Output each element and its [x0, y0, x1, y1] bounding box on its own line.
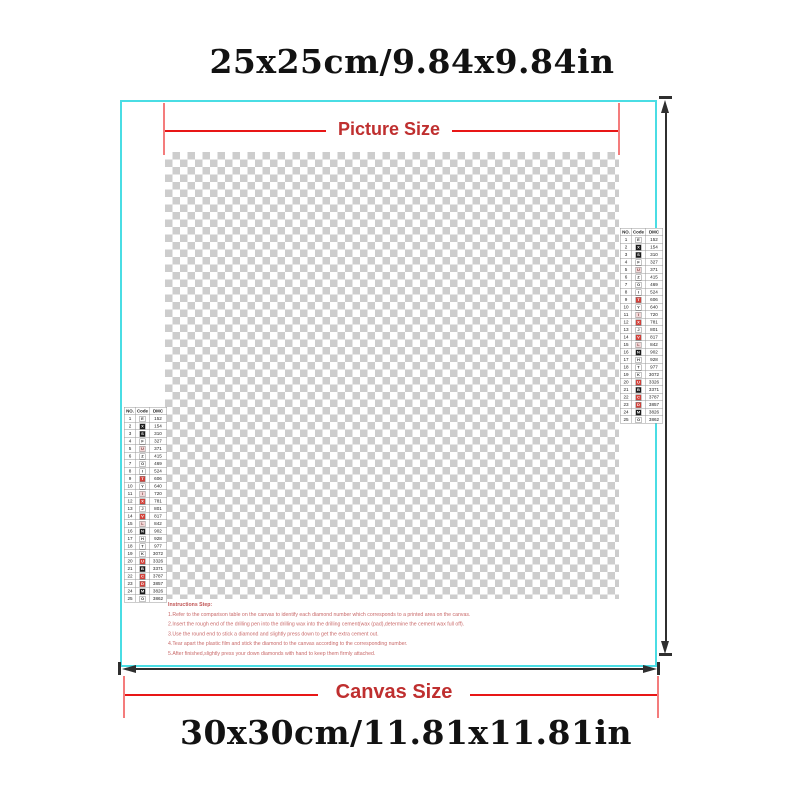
instructions-title: Instructions Step:: [168, 600, 620, 610]
color-symbol-icon: T: [140, 543, 146, 549]
legend-code-cell: B: [136, 565, 150, 573]
legend-code-cell: D: [136, 580, 150, 588]
legend-no-cell: 21: [124, 565, 136, 573]
color-symbol-icon: T: [636, 364, 642, 370]
width-arrow-right-cap: [657, 662, 660, 675]
legend-code-cell: I: [632, 311, 646, 319]
color-symbol-icon: B: [140, 566, 146, 572]
instructions-block: Instructions Step: 1.Refer to the compar…: [168, 600, 620, 659]
legend-row: 12X781: [124, 497, 167, 505]
color-symbol-icon: V: [140, 513, 146, 519]
legend-code-cell: T: [632, 363, 646, 371]
legend-code-cell: M: [136, 587, 150, 595]
legend-no-cell: 24: [620, 408, 632, 416]
legend-dmc-cell: 3072: [149, 550, 167, 558]
legend-row: 8I524: [124, 467, 167, 475]
color-symbol-icon: B: [636, 387, 642, 393]
legend-no-cell: 2: [620, 243, 632, 251]
instruction-step: 4.Tear apart the plastic film and stick …: [168, 639, 620, 649]
canvas-dimensions-text: 30x30cm/11.81x11.81in: [6, 713, 800, 752]
legend-no-cell: 8: [124, 467, 136, 475]
color-symbol-icon: N: [140, 528, 146, 534]
legend-code-cell: K: [632, 371, 646, 379]
legend-row: 23D3857: [620, 401, 663, 409]
legend-dmc-cell: 928: [149, 535, 167, 543]
instruction-step: 2.Insert the rough end of the drilling p…: [168, 620, 620, 630]
legend-code-cell: H: [136, 535, 150, 543]
color-symbol-icon: O: [636, 282, 642, 288]
legend-code-cell: O: [632, 416, 646, 424]
legend-row: 9T606: [620, 296, 663, 304]
legend-no-cell: 19: [620, 371, 632, 379]
product-diagram: 25x25cm/9.84x9.84in Picture Size NO.Code…: [0, 0, 800, 800]
legend-no-cell: 3: [620, 251, 632, 259]
legend-dmc-cell: 415: [645, 273, 663, 281]
legend-no-cell: 7: [620, 281, 632, 289]
legend-dmc-cell: 310: [645, 251, 663, 259]
picture-size-tick-right: [618, 103, 620, 155]
color-symbol-icon: I: [636, 312, 642, 318]
legend-no-cell: 6: [124, 452, 136, 460]
legend-no-cell: 10: [124, 482, 136, 490]
legend-code-cell: U: [632, 378, 646, 386]
legend-code-cell: E: [632, 236, 646, 244]
legend-row: 20U3326: [620, 378, 663, 386]
legend-row: 10Y640: [124, 482, 167, 490]
legend-code-cell: F: [632, 258, 646, 266]
legend-row: 12X781: [620, 318, 663, 326]
legend-no-cell: 10: [620, 303, 632, 311]
legend-dmc-cell: 152: [149, 415, 167, 423]
legend-dmc-cell: 817: [645, 333, 663, 341]
legend-header-cell: DMC: [149, 407, 167, 415]
legend-code-cell: T: [136, 475, 150, 483]
color-symbol-icon: U: [636, 379, 642, 385]
legend-no-cell: 17: [124, 535, 136, 543]
legend-dmc-cell: 606: [645, 296, 663, 304]
picture-size-tick-left: [163, 103, 165, 155]
legend-dmc-cell: 640: [149, 482, 167, 490]
legend-code-cell: I: [136, 490, 150, 498]
instruction-step: 5.After finished,slightly press your dow…: [168, 649, 620, 659]
color-symbol-icon: Y: [636, 304, 642, 310]
picture-size-line-left: [164, 130, 326, 132]
color-symbol-icon: F: [636, 259, 642, 265]
legend-dmc-cell: 928: [645, 356, 663, 364]
legend-no-cell: 5: [124, 445, 136, 453]
legend-code-cell: X: [632, 243, 646, 251]
legend-code-cell: E: [136, 415, 150, 423]
legend-row: 4F327: [124, 437, 167, 445]
legend-code-cell: M: [632, 408, 646, 416]
legend-no-cell: 14: [620, 333, 632, 341]
legend-row: 19K3072: [620, 371, 663, 379]
picture-area-checkerboard: [165, 152, 619, 599]
picture-dimensions-text: 25x25cm/9.84x9.84in: [12, 42, 800, 81]
legend-no-cell: 15: [124, 520, 136, 528]
color-symbol-icon: O: [140, 461, 146, 467]
legend-no-cell: 23: [124, 580, 136, 588]
color-symbol-icon: L: [140, 521, 146, 527]
legend-dmc-cell: 720: [645, 311, 663, 319]
legend-code-cell: I: [136, 467, 150, 475]
color-symbol-icon: I: [636, 289, 642, 295]
picture-size-line-right: [452, 130, 619, 132]
legend-code-cell: F: [136, 437, 150, 445]
legend-no-cell: 13: [124, 505, 136, 513]
color-symbol-icon: X: [140, 498, 146, 504]
legend-dmc-cell: 154: [149, 422, 167, 430]
legend-row: 16N902: [620, 348, 663, 356]
picture-size-label: Picture Size: [326, 119, 452, 140]
color-symbol-icon: F: [140, 438, 146, 444]
legend-code-cell: I: [632, 288, 646, 296]
legend-no-cell: 5: [620, 266, 632, 274]
legend-row: 22C3787: [124, 572, 167, 580]
legend-row: 7O469: [620, 281, 663, 289]
color-symbol-icon: V: [636, 334, 642, 340]
legend-row: 1E152: [620, 236, 663, 244]
legend-dmc-cell: 3826: [645, 408, 663, 416]
color-symbol-icon: H: [140, 536, 146, 542]
legend-dmc-cell: 524: [149, 467, 167, 475]
legend-code-cell: U: [632, 266, 646, 274]
legend-no-cell: 13: [620, 326, 632, 334]
legend-row: 21B3371: [620, 386, 663, 394]
legend-header-cell: DMC: [645, 228, 663, 236]
canvas-size-line-right: [470, 694, 658, 696]
legend-dmc-cell: 606: [149, 475, 167, 483]
legend-row: 14V817: [124, 512, 167, 520]
legend-code-cell: X: [136, 422, 150, 430]
legend-dmc-cell: 801: [149, 505, 167, 513]
legend-dmc-cell: 3787: [645, 393, 663, 401]
color-symbol-icon: S: [140, 431, 146, 437]
legend-code-cell: O: [632, 281, 646, 289]
legend-dmc-cell: 720: [149, 490, 167, 498]
color-symbol-icon: K: [636, 372, 642, 378]
color-legend-table-left: NO.CodeDMC1E1522X1543S3104F3275U3716Z415…: [124, 407, 167, 603]
legend-code-cell: S: [632, 251, 646, 259]
color-symbol-icon: J: [140, 506, 146, 512]
legend-no-cell: 1: [620, 236, 632, 244]
legend-row: 5U371: [124, 445, 167, 453]
legend-header-cell: Code: [632, 228, 646, 236]
legend-row: 18T977: [620, 363, 663, 371]
legend-dmc-cell: 3862: [645, 416, 663, 424]
legend-dmc-cell: 524: [645, 288, 663, 296]
legend-header-row: NO.CodeDMC: [124, 407, 167, 415]
legend-header-cell: NO.: [124, 407, 136, 415]
legend-row: 1E152: [124, 415, 167, 423]
legend-no-cell: 11: [124, 490, 136, 498]
legend-row: 11I720: [620, 311, 663, 319]
legend-dmc-cell: 469: [149, 460, 167, 468]
legend-row: 15L842: [620, 341, 663, 349]
legend-row: 23D3857: [124, 580, 167, 588]
legend-dmc-cell: 3826: [149, 587, 167, 595]
color-symbol-icon: J: [636, 327, 642, 333]
legend-no-cell: 16: [124, 527, 136, 535]
legend-dmc-cell: 3787: [149, 572, 167, 580]
legend-dmc-cell: 817: [149, 512, 167, 520]
legend-code-cell: C: [136, 572, 150, 580]
legend-no-cell: 18: [124, 542, 136, 550]
color-symbol-icon: M: [140, 588, 146, 594]
color-legend-table-right: NO.CodeDMC1E1522X1543S3104F3275U3716Z415…: [620, 228, 663, 424]
legend-row: 6Z415: [620, 273, 663, 281]
legend-row: 25O3862: [620, 416, 663, 424]
legend-dmc-cell: 154: [645, 243, 663, 251]
legend-code-cell: V: [632, 333, 646, 341]
legend-dmc-cell: 371: [149, 445, 167, 453]
legend-code-cell: T: [632, 296, 646, 304]
legend-no-cell: 24: [124, 587, 136, 595]
height-arrow-bottom-cap: [659, 653, 672, 656]
legend-no-cell: 17: [620, 356, 632, 364]
legend-row: 21B3371: [124, 565, 167, 573]
legend-code-cell: D: [632, 401, 646, 409]
legend-code-cell: U: [136, 445, 150, 453]
instruction-step: 3.Use the round end to stick a diamond a…: [168, 629, 620, 639]
legend-row: 18T977: [124, 542, 167, 550]
legend-no-cell: 20: [124, 557, 136, 565]
legend-code-cell: H: [632, 356, 646, 364]
color-symbol-icon: O: [636, 417, 642, 423]
color-symbol-icon: X: [636, 244, 642, 250]
legend-code-cell: N: [136, 527, 150, 535]
legend-row: 19K3072: [124, 550, 167, 558]
legend-no-cell: 12: [620, 318, 632, 326]
legend-code-cell: O: [136, 595, 150, 603]
color-symbol-icon: Z: [636, 274, 642, 280]
legend-no-cell: 11: [620, 311, 632, 319]
legend-code-cell: Y: [136, 482, 150, 490]
legend-no-cell: 6: [620, 273, 632, 281]
legend-dmc-cell: 415: [149, 452, 167, 460]
legend-dmc-cell: 3862: [149, 595, 167, 603]
legend-row: 25O3862: [124, 595, 167, 603]
legend-code-cell: K: [136, 550, 150, 558]
legend-dmc-cell: 371: [645, 266, 663, 274]
color-symbol-icon: S: [636, 252, 642, 258]
legend-dmc-cell: 3371: [645, 386, 663, 394]
legend-no-cell: 12: [124, 497, 136, 505]
legend-dmc-cell: 977: [645, 363, 663, 371]
legend-row: 9T606: [124, 475, 167, 483]
legend-row: 20U3326: [124, 557, 167, 565]
legend-row: 2X154: [124, 422, 167, 430]
legend-dmc-cell: 902: [645, 348, 663, 356]
legend-header-row: NO.CodeDMC: [620, 228, 663, 236]
legend-no-cell: 2: [124, 422, 136, 430]
legend-dmc-cell: 3326: [645, 378, 663, 386]
color-symbol-icon: I: [140, 468, 146, 474]
legend-no-cell: 23: [620, 401, 632, 409]
legend-code-cell: J: [632, 326, 646, 334]
legend-code-cell: U: [136, 557, 150, 565]
color-symbol-icon: Z: [140, 453, 146, 459]
legend-dmc-cell: 977: [149, 542, 167, 550]
legend-row: 3S310: [124, 430, 167, 438]
color-symbol-icon: E: [140, 416, 146, 422]
legend-dmc-cell: 3371: [149, 565, 167, 573]
legend-code-cell: J: [136, 505, 150, 513]
legend-no-cell: 25: [620, 416, 632, 424]
instruction-step: 1.Refer to the comparison table on the c…: [168, 610, 620, 620]
legend-no-cell: 19: [124, 550, 136, 558]
legend-dmc-cell: 152: [645, 236, 663, 244]
legend-dmc-cell: 842: [645, 341, 663, 349]
legend-code-cell: O: [136, 460, 150, 468]
legend-dmc-cell: 781: [645, 318, 663, 326]
legend-code-cell: Z: [136, 452, 150, 460]
legend-row: 17H928: [620, 356, 663, 364]
legend-dmc-cell: 469: [645, 281, 663, 289]
legend-no-cell: 21: [620, 386, 632, 394]
legend-code-cell: N: [632, 348, 646, 356]
width-arrow-right-icon: [643, 665, 657, 673]
legend-no-cell: 3: [124, 430, 136, 438]
color-symbol-icon: X: [636, 319, 642, 325]
color-symbol-icon: I: [140, 491, 146, 497]
legend-row: 22C3787: [620, 393, 663, 401]
legend-row: 2X154: [620, 243, 663, 251]
legend-dmc-cell: 310: [149, 430, 167, 438]
legend-dmc-cell: 3326: [149, 557, 167, 565]
legend-header-cell: Code: [136, 407, 150, 415]
color-symbol-icon: O: [140, 596, 146, 602]
legend-no-cell: 8: [620, 288, 632, 296]
canvas-size-tick-right: [657, 676, 659, 718]
legend-code-cell: S: [136, 430, 150, 438]
color-symbol-icon: M: [636, 409, 642, 415]
legend-row: 16N902: [124, 527, 167, 535]
legend-row: 5U371: [620, 266, 663, 274]
legend-no-cell: 4: [620, 258, 632, 266]
legend-dmc-cell: 801: [645, 326, 663, 334]
color-symbol-icon: L: [636, 342, 642, 348]
legend-code-cell: B: [632, 386, 646, 394]
legend-no-cell: 7: [124, 460, 136, 468]
legend-row: 10Y640: [620, 303, 663, 311]
legend-row: 14V817: [620, 333, 663, 341]
color-symbol-icon: U: [140, 446, 146, 452]
legend-no-cell: 15: [620, 341, 632, 349]
legend-row: 15L842: [124, 520, 167, 528]
legend-row: 3S310: [620, 251, 663, 259]
legend-row: 17H928: [124, 535, 167, 543]
color-symbol-icon: T: [140, 476, 146, 482]
color-symbol-icon: T: [636, 297, 642, 303]
canvas-size-line-left: [124, 694, 318, 696]
legend-no-cell: 22: [620, 393, 632, 401]
legend-row: 13J801: [124, 505, 167, 513]
color-symbol-icon: H: [636, 357, 642, 363]
color-symbol-icon: U: [140, 558, 146, 564]
legend-code-cell: V: [136, 512, 150, 520]
legend-code-cell: Y: [632, 303, 646, 311]
legend-code-cell: C: [632, 393, 646, 401]
legend-dmc-cell: 842: [149, 520, 167, 528]
legend-row: 24M3826: [620, 408, 663, 416]
legend-no-cell: 4: [124, 437, 136, 445]
width-arrow-line: [134, 668, 646, 670]
width-arrow-left-cap: [118, 662, 121, 675]
legend-header-cell: NO.: [620, 228, 632, 236]
legend-no-cell: 18: [620, 363, 632, 371]
legend-dmc-cell: 3857: [149, 580, 167, 588]
legend-dmc-cell: 902: [149, 527, 167, 535]
legend-code-cell: L: [632, 341, 646, 349]
legend-no-cell: 20: [620, 378, 632, 386]
color-symbol-icon: C: [140, 573, 146, 579]
legend-no-cell: 16: [620, 348, 632, 356]
legend-row: 8I524: [620, 288, 663, 296]
legend-code-cell: X: [136, 497, 150, 505]
legend-no-cell: 9: [124, 475, 136, 483]
color-symbol-icon: C: [636, 394, 642, 400]
legend-dmc-cell: 3072: [645, 371, 663, 379]
legend-dmc-cell: 640: [645, 303, 663, 311]
legend-dmc-cell: 781: [149, 497, 167, 505]
legend-row: 13J801: [620, 326, 663, 334]
color-symbol-icon: D: [140, 581, 146, 587]
legend-row: 11I720: [124, 490, 167, 498]
legend-no-cell: 9: [620, 296, 632, 304]
canvas-size-tick-left: [123, 676, 125, 718]
legend-code-cell: L: [136, 520, 150, 528]
color-symbol-icon: K: [140, 551, 146, 557]
legend-dmc-cell: 327: [149, 437, 167, 445]
legend-dmc-cell: 327: [645, 258, 663, 266]
legend-code-cell: Z: [632, 273, 646, 281]
height-arrow-line: [665, 112, 667, 642]
color-symbol-icon: U: [636, 267, 642, 273]
legend-no-cell: 14: [124, 512, 136, 520]
color-symbol-icon: D: [636, 402, 642, 408]
color-symbol-icon: Y: [140, 483, 146, 489]
color-symbol-icon: E: [636, 237, 642, 243]
legend-row: 4F327: [620, 258, 663, 266]
height-arrow-top-cap: [659, 96, 672, 99]
legend-no-cell: 1: [124, 415, 136, 423]
legend-row: 6Z415: [124, 452, 167, 460]
color-symbol-icon: N: [636, 349, 642, 355]
legend-no-cell: 22: [124, 572, 136, 580]
legend-dmc-cell: 3857: [645, 401, 663, 409]
canvas-size-label: Canvas Size: [318, 681, 470, 704]
legend-row: 7O469: [124, 460, 167, 468]
legend-code-cell: X: [632, 318, 646, 326]
legend-code-cell: T: [136, 542, 150, 550]
legend-no-cell: 25: [124, 595, 136, 603]
color-symbol-icon: X: [140, 423, 146, 429]
legend-row: 24M3826: [124, 587, 167, 595]
